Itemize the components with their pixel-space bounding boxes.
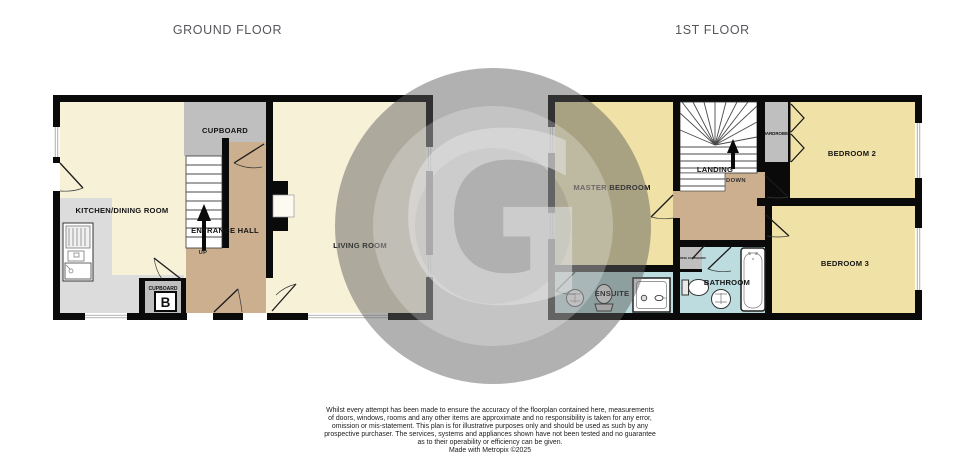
ff-master-door-opening <box>673 191 680 218</box>
disclaimer-line: Whilst every attempt has been made to en… <box>0 407 980 415</box>
ensuite-shower <box>633 278 670 312</box>
ff-airing-cupboard-label: AIRING CUPBOARD <box>676 256 706 260</box>
ground-floor-plan: CUPBOARD B <box>50 93 436 323</box>
ff-landing-bath-wall-right <box>733 240 765 247</box>
first-floor-plan: WARDROBE AIRING CUPBOARD <box>545 93 925 323</box>
gf-window-right-lower <box>426 255 433 277</box>
ff-bed3-wall-lower <box>765 238 772 313</box>
ff-window-left-lower <box>548 213 555 239</box>
ff-window-right-bed3 <box>915 228 922 290</box>
ff-bed2-bed3-wall <box>757 198 915 206</box>
gf-front-door-side <box>187 313 213 320</box>
gf-kitchen-appliances <box>63 223 93 281</box>
gf-window-bottom-kitchen <box>85 313 127 320</box>
ff-bedroom3-label: BEDROOM 3 <box>821 259 869 268</box>
ff-down-label: DOWN <box>726 178 746 184</box>
gf-living-room-label: LIVING ROOM <box>333 241 387 250</box>
ff-bathroom-label: BATHROOM <box>704 278 750 287</box>
gf-cupboard-label: CUPBOARD <box>202 126 248 135</box>
ff-landing-bath-wall-left <box>680 240 705 247</box>
gf-staircase <box>186 156 222 251</box>
first-floor-title: 1ST FLOOR <box>645 23 780 37</box>
ff-landing-bed2-wall <box>757 102 765 172</box>
gf-small-cupboard: CUPBOARD B <box>139 278 186 313</box>
disclaimer-credit: Made with Metropix ©2025 <box>0 447 980 455</box>
gf-living-wall <box>266 102 273 278</box>
gf-entrance-hall-label: ENTRANCE HALL <box>191 226 259 235</box>
gf-kitchen-label: KITCHEN/DINING ROOM <box>76 206 169 215</box>
gf-window-bottom-living <box>308 313 388 320</box>
disclaimer-line: omission or mis-statement. This plan is … <box>0 423 980 431</box>
gf-front-door-side2 <box>243 313 267 320</box>
ff-master-bedroom-label: MASTER BEDROOM <box>573 183 650 192</box>
gf-window-left <box>53 127 60 157</box>
ff-wardrobe-label: WARDROBE <box>762 131 788 136</box>
ff-landing-label: LANDING <box>697 165 733 174</box>
ff-master-ensuite-wall <box>575 265 673 272</box>
ground-floor-title: GROUND FLOOR <box>155 23 300 37</box>
gf-up-label: UP <box>199 250 208 256</box>
disclaimer-line: as to their operability or efficiency ca… <box>0 439 980 447</box>
floorplan-page: GROUND FLOOR 1ST FLOOR <box>0 0 980 457</box>
gf-door-opening-left <box>53 163 60 191</box>
ff-window-right-bed2 <box>915 123 922 178</box>
ff-ensuite-label: ENSUITE <box>595 289 630 298</box>
disclaimer-line: of doors, windows, rooms and any other i… <box>0 415 980 423</box>
disclaimer-line: prospective purchaser. The services, sys… <box>0 431 980 439</box>
ff-window-left-upper <box>548 127 555 153</box>
ff-airing-cupboard: AIRING CUPBOARD <box>676 247 706 272</box>
gf-boiler-label: B <box>161 295 171 310</box>
bathroom-basin <box>712 290 731 309</box>
disclaimer-text: Whilst every attempt has been made to en… <box>0 407 980 454</box>
ff-bedroom2-label: BEDROOM 2 <box>828 149 876 158</box>
ff-bed3-wall-upper <box>765 206 772 212</box>
ensuite-basin <box>567 290 584 307</box>
gf-window-right-upper <box>426 147 433 171</box>
